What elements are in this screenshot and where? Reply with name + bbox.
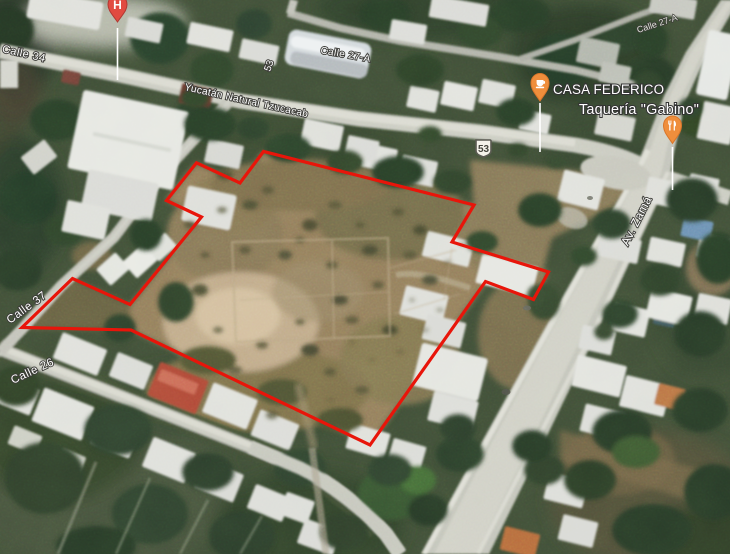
svg-text:H: H xyxy=(113,0,122,12)
svg-text:Taquería "Gabino": Taquería "Gabino" xyxy=(579,102,699,118)
svg-text:CASA FEDERICO: CASA FEDERICO xyxy=(553,82,664,97)
svg-text:53: 53 xyxy=(478,144,490,155)
